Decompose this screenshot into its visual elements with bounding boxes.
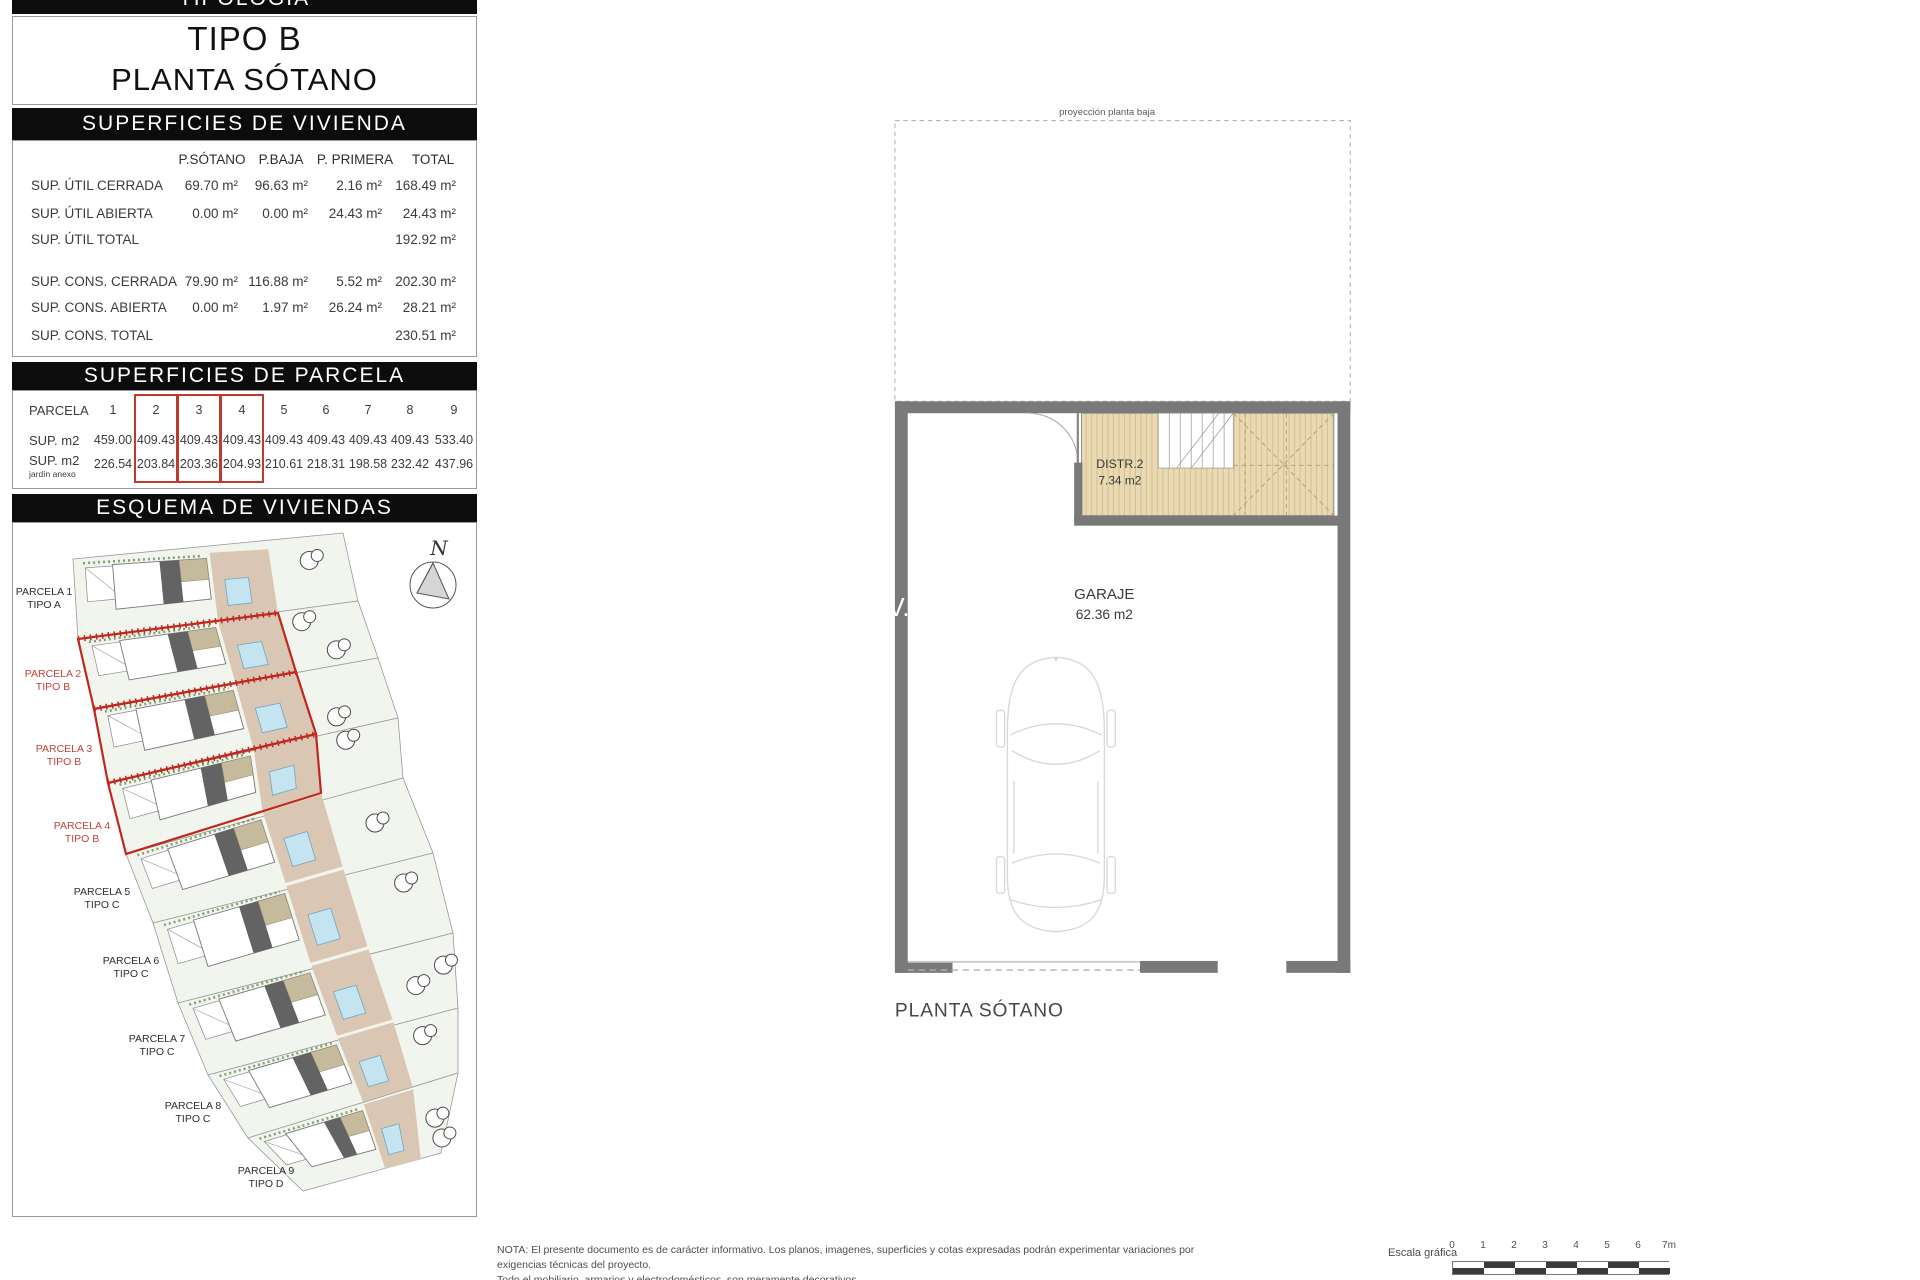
graphic-scale: 01234567m bbox=[1452, 1240, 1676, 1280]
scale-tick: 2 bbox=[1511, 1240, 1517, 1251]
vivienda-col-header: TOTAL bbox=[412, 152, 454, 167]
scale-segment bbox=[1608, 1268, 1639, 1274]
parcela-banner: SUPERFICIES DE PARCELA bbox=[12, 362, 477, 390]
parcel-label: PARCELA 8 bbox=[165, 1100, 222, 1112]
vivienda-cell: 192.92 m² bbox=[395, 232, 456, 247]
document-page: TIPOLOGÍA TIPO B PLANTA SÓTANO SUPERFICI… bbox=[0, 0, 1920, 1280]
parcela-sup-value: 409.43 bbox=[349, 433, 387, 447]
vivienda-cell: 26.24 m² bbox=[329, 300, 382, 315]
scale-tick: 0 bbox=[1449, 1240, 1455, 1251]
vivienda-cell: 96.63 m² bbox=[255, 178, 308, 193]
vivienda-cell: 69.70 m² bbox=[185, 178, 238, 193]
vivienda-cell: 0.00 m² bbox=[262, 206, 308, 221]
vivienda-row-label: SUP. CONS. CERRADA bbox=[31, 274, 177, 289]
scale-segment bbox=[1577, 1268, 1608, 1274]
parcela-highlight-box bbox=[220, 394, 264, 483]
vivienda-cell: 24.43 m² bbox=[403, 206, 456, 221]
parcela-sup-label: SUP. m2 bbox=[29, 433, 79, 448]
site-plan: PARCELA 1TIPO APARCELA 2TIPO BPARCELA 3T… bbox=[12, 522, 477, 1217]
parcela-sup-value: 459.00 bbox=[94, 433, 132, 447]
site-plan-drawing: PARCELA 1TIPO APARCELA 2TIPO BPARCELA 3T… bbox=[13, 523, 476, 1216]
vivienda-cell: 230.51 m² bbox=[395, 328, 456, 343]
scale-segment bbox=[1546, 1268, 1577, 1274]
parcel-tipo-label: TIPO C bbox=[84, 899, 119, 911]
projection-label: proyección planta baja bbox=[1059, 107, 1156, 118]
vivienda-cell: 168.49 m² bbox=[395, 178, 456, 193]
parcel-tipo-label: TIPO B bbox=[65, 833, 99, 845]
plan-title: PLANTA SÓTANO bbox=[895, 1000, 1064, 1022]
vivienda-cell: 0.00 m² bbox=[192, 206, 238, 221]
scale-segment bbox=[1484, 1268, 1515, 1274]
scale-tick: 5 bbox=[1604, 1240, 1610, 1251]
parcela-sup-value: 409.43 bbox=[391, 433, 429, 447]
vivienda-cell: 5.52 m² bbox=[336, 274, 382, 289]
scale-tick: 6 bbox=[1635, 1240, 1641, 1251]
watermark: V. bbox=[888, 594, 910, 622]
parcela-banner-label: SUPERFICIES DE PARCELA bbox=[12, 362, 477, 390]
scale-tick: 7m bbox=[1662, 1240, 1676, 1251]
tipologia-banner: TIPOLOGÍA bbox=[12, 0, 477, 14]
parcela-table: PARCELASUP. m2SUP. m2jardín anexo1234567… bbox=[12, 390, 477, 489]
vivienda-cell: 1.97 m² bbox=[262, 300, 308, 315]
parcel-label: PARCELA 1 bbox=[16, 586, 73, 598]
staircase bbox=[1158, 413, 1233, 468]
parcela-highlight-box bbox=[177, 394, 221, 483]
parcela-jardin-value: 232.42 bbox=[391, 457, 429, 471]
parcel-label: PARCELA 9 bbox=[238, 1165, 295, 1177]
car-outline bbox=[996, 657, 1115, 931]
garaje-name: GARAJE bbox=[1074, 586, 1134, 603]
distr2-name: DISTR.2 bbox=[1096, 457, 1143, 471]
vivienda-row-label: SUP. ÚTIL TOTAL bbox=[31, 232, 139, 247]
parcel-label: PARCELA 6 bbox=[103, 955, 160, 967]
vivienda-row-label: SUP. CONS. TOTAL bbox=[31, 328, 153, 343]
vivienda-row-label: SUP. ÚTIL ABIERTA bbox=[31, 206, 153, 221]
parcel-label: PARCELA 7 bbox=[129, 1033, 186, 1045]
vivienda-cell: 116.88 m² bbox=[248, 274, 308, 289]
esquema-banner: ESQUEMA DE VIVIENDAS bbox=[12, 494, 477, 522]
vivienda-col-header: P.BAJA bbox=[259, 152, 304, 167]
parcel-label: PARCELA 2 bbox=[25, 668, 82, 680]
parcela-highlight-box bbox=[134, 394, 178, 483]
vivienda-row-label: SUP. ÚTIL CERRADA bbox=[31, 178, 163, 193]
distr2-side-wall bbox=[1074, 463, 1082, 522]
parcela-jardin-label: SUP. m2 bbox=[29, 453, 79, 468]
parcela-jardin-value: 218.31 bbox=[307, 457, 345, 471]
parcel-tipo-label: TIPO D bbox=[248, 1178, 283, 1190]
projection-dashed-outline bbox=[895, 121, 1350, 402]
parcela-number: 1 bbox=[110, 403, 117, 417]
parcel-tipo-label: TIPO C bbox=[175, 1113, 210, 1125]
parcela-jardin-value: 198.58 bbox=[349, 457, 387, 471]
north-compass: N bbox=[410, 536, 456, 608]
vivienda-cell: 24.43 m² bbox=[329, 206, 382, 221]
parcela-jardin-sublabel: jardín anexo bbox=[29, 469, 76, 479]
parcela-number: 9 bbox=[451, 403, 458, 417]
house-roof-hatch bbox=[188, 628, 221, 651]
planta-title: PLANTA SÓTANO bbox=[12, 62, 477, 98]
note-line-2: Todo el mobiliario, armarios y electrodo… bbox=[497, 1273, 1202, 1280]
scale-segment bbox=[1453, 1268, 1484, 1274]
door-swing bbox=[1028, 413, 1077, 462]
parcela-number: 7 bbox=[365, 403, 372, 417]
parcela-jardin-value: 210.61 bbox=[265, 457, 303, 471]
parcel-label: PARCELA 3 bbox=[36, 743, 93, 755]
distr2-area: 7.34 m2 bbox=[1098, 474, 1141, 488]
tipo-title: TIPO B bbox=[12, 20, 477, 58]
scale-label: Escala gráfica bbox=[1388, 1247, 1457, 1259]
parcela-number: 6 bbox=[323, 403, 330, 417]
footer-note: NOTA: El presente documento es de caráct… bbox=[497, 1243, 1202, 1280]
tipologia-banner-label: TIPOLOGÍA bbox=[12, 0, 477, 14]
vivienda-cell: 79.90 m² bbox=[185, 274, 238, 289]
garaje-area: 62.36 m2 bbox=[1076, 607, 1133, 622]
scale-tick: 4 bbox=[1573, 1240, 1579, 1251]
vivienda-cell: 0.00 m² bbox=[192, 300, 238, 315]
vivienda-row-label: SUP. CONS. ABIERTA bbox=[31, 300, 167, 315]
parcel-tipo-label: TIPO C bbox=[139, 1046, 174, 1058]
scale-tick: 3 bbox=[1542, 1240, 1548, 1251]
vivienda-banner: SUPERFICIES DE VIVIENDA bbox=[12, 108, 477, 140]
parcel-tipo-label: TIPO A bbox=[27, 599, 61, 611]
parcela-jardin-value: 437.96 bbox=[435, 457, 473, 471]
parcela-header-label: PARCELA bbox=[29, 403, 89, 418]
vivienda-banner-label: SUPERFICIES DE VIVIENDA bbox=[12, 108, 477, 140]
vivienda-cell: 28.21 m² bbox=[403, 300, 456, 315]
parcel-tipo-label: TIPO B bbox=[36, 681, 70, 693]
parcel-tipo-label: TIPO B bbox=[47, 756, 81, 768]
parcel-label: PARCELA 5 bbox=[74, 886, 131, 898]
esquema-banner-label: ESQUEMA DE VIVIENDAS bbox=[12, 494, 477, 522]
graphic-scale-bar bbox=[1452, 1261, 1669, 1275]
vivienda-col-header: P. PRIMERA bbox=[317, 152, 393, 167]
pool bbox=[225, 577, 252, 605]
north-label: N bbox=[429, 536, 449, 560]
vivienda-col-header: P.SÓTANO bbox=[178, 152, 245, 167]
vivienda-cell: 2.16 m² bbox=[336, 178, 382, 193]
parcel-tipo-label: TIPO C bbox=[113, 968, 148, 980]
parcela-sup-value: 409.43 bbox=[265, 433, 303, 447]
scale-tick: 1 bbox=[1480, 1240, 1486, 1251]
parcela-number: 8 bbox=[407, 403, 414, 417]
scale-segment bbox=[1515, 1268, 1546, 1274]
parcela-number: 5 bbox=[281, 403, 288, 417]
distr2-lower-wall bbox=[1074, 516, 1337, 526]
note-line-1: NOTA: El presente documento es de caráct… bbox=[497, 1243, 1202, 1273]
house-roof-hatch bbox=[179, 559, 209, 582]
parcela-jardin-value: 226.54 bbox=[94, 457, 132, 471]
floorplan-drawing: proyección planta baja bbox=[860, 95, 1420, 1110]
parcela-sup-value: 533.40 bbox=[435, 433, 473, 447]
parcel-label: PARCELA 4 bbox=[54, 820, 111, 832]
vivienda-table: P.SÓTANOP.BAJAP. PRIMERATOTALSUP. ÚTIL C… bbox=[12, 140, 477, 357]
vivienda-cell: 202.30 m² bbox=[395, 274, 456, 289]
scale-segment bbox=[1639, 1268, 1670, 1274]
parcela-sup-value: 409.43 bbox=[307, 433, 345, 447]
